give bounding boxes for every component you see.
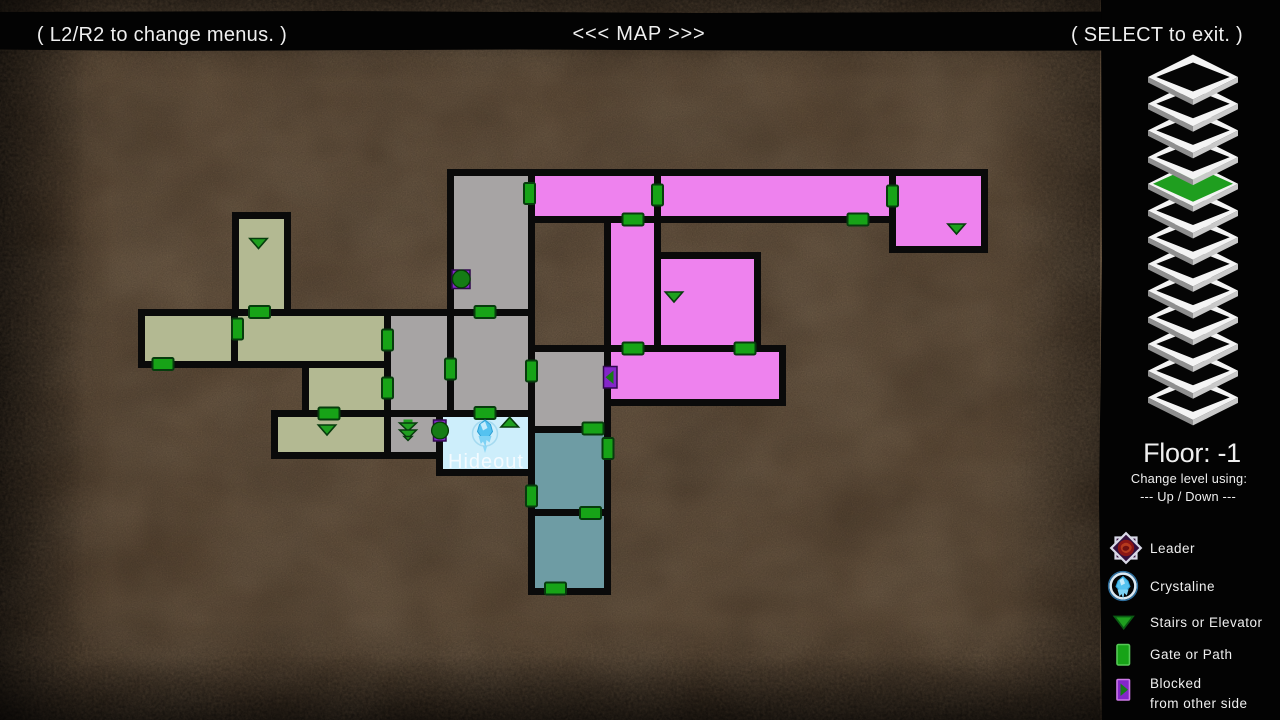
svg-text:Floor: -1: Floor: -1 <box>1143 438 1241 468</box>
svg-text:( L2/R2 to change menus. ): ( L2/R2 to change menus. ) <box>37 24 287 46</box>
svg-text:( SELECT to exit. ): ( SELECT to exit. ) <box>1071 24 1243 46</box>
svg-text:Crystaline: Crystaline <box>1150 579 1215 594</box>
svg-text:Change level using:: Change level using: <box>1131 471 1247 486</box>
svg-text:Leader: Leader <box>1150 541 1195 556</box>
svg-text:Stairs or Elevator: Stairs or Elevator <box>1150 615 1263 630</box>
svg-text:from other side: from other side <box>1150 696 1248 711</box>
svg-text:<<< MAP >>>: <<< MAP >>> <box>573 23 706 45</box>
svg-text:--- Up / Down ---: --- Up / Down --- <box>1140 489 1236 504</box>
svg-text:Gate or Path: Gate or Path <box>1150 647 1233 662</box>
svg-text:Blocked: Blocked <box>1150 676 1202 691</box>
svg-text:Hideout: Hideout <box>448 451 524 473</box>
